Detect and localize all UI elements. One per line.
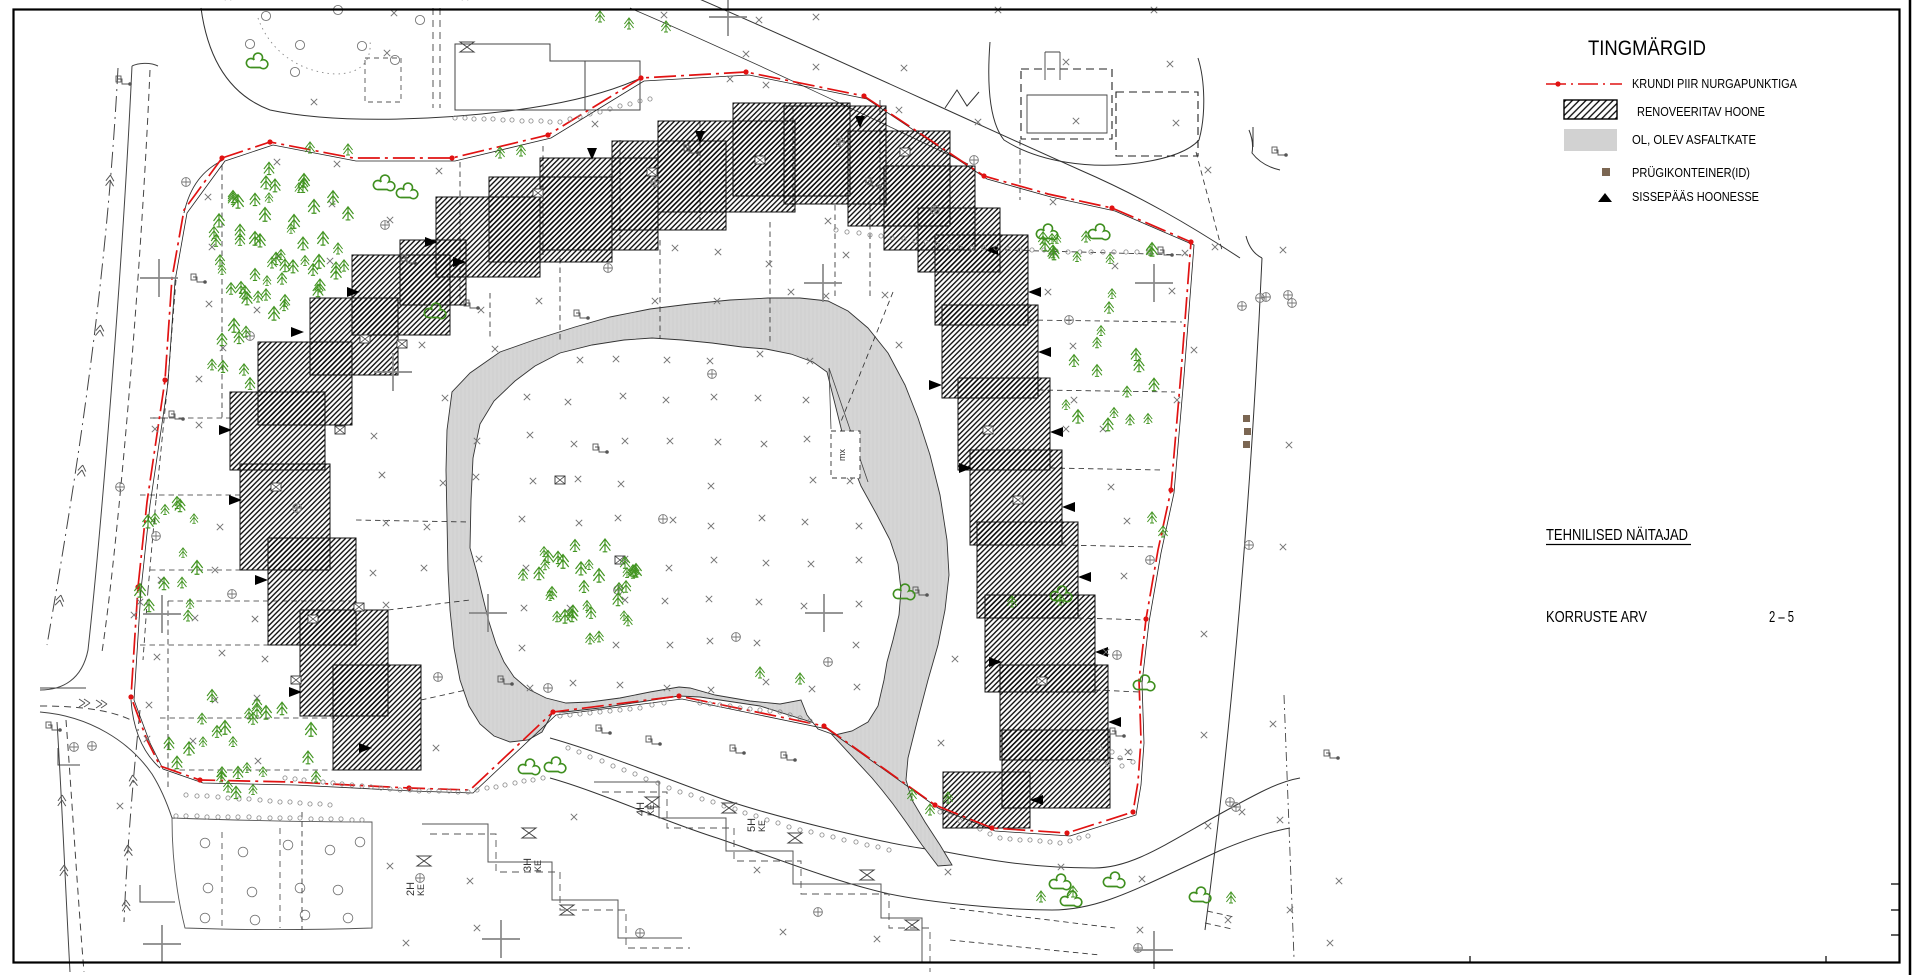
svg-text:2 – 5: 2 – 5: [1769, 609, 1794, 626]
svg-text:KRUNDI PIIR NURGAPUNKTIGA: KRUNDI PIIR NURGAPUNKTIGA: [1632, 77, 1798, 91]
svg-text:KE: KE: [533, 860, 543, 872]
svg-text:RENOVEERITAV HOONE: RENOVEERITAV HOONE: [1637, 105, 1765, 119]
svg-text:KORRUSTE ARV: KORRUSTE ARV: [1546, 609, 1648, 626]
svg-text:TEHNILISED NÄITAJAD: TEHNILISED NÄITAJAD: [1546, 527, 1688, 544]
svg-text:TINGMÄRGID: TINGMÄRGID: [1588, 37, 1706, 60]
svg-text:SISSEPÄÄS HOONESSE: SISSEPÄÄS HOONESSE: [1632, 190, 1759, 204]
svg-text:PRÜGIKONTEINER(ID): PRÜGIKONTEINER(ID): [1632, 166, 1750, 180]
svg-text:mx: mx: [837, 449, 847, 461]
svg-text:KE: KE: [416, 884, 426, 896]
svg-text:OL, OLEV ASFALTKATE: OL, OLEV ASFALTKATE: [1632, 133, 1756, 147]
svg-text:KE: KE: [646, 804, 656, 816]
